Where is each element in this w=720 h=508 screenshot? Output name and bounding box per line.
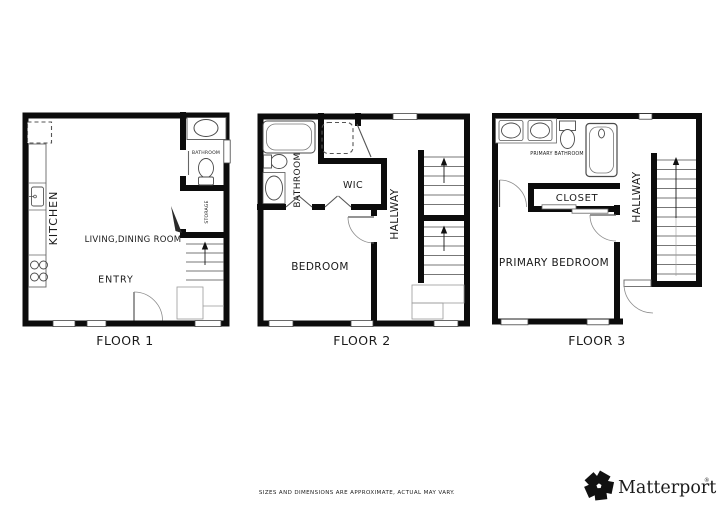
brand-wordmark: Matterport (618, 478, 716, 498)
window (587, 319, 609, 325)
closet-label: CLOSET (556, 193, 599, 204)
window (224, 140, 230, 163)
hallway-label: HALLWAY (389, 188, 401, 239)
hall-door-leaf (624, 280, 651, 287)
living-dining-label: LIVING,DINING ROOM (85, 235, 182, 245)
understair-nook (177, 287, 203, 319)
matterport-logo: Matterport ® (581, 470, 717, 505)
floor-3-plan: PRIMARY BATHROOM CLOSET HALLWAY PRIMARY … (492, 113, 702, 348)
primary-bedroom-label: PRIMARY BEDROOM (499, 257, 609, 269)
bedroom-label: BEDROOM (291, 261, 349, 273)
window (351, 321, 373, 327)
hallway-label: HALLWAY (631, 171, 643, 222)
floorplan-page: KITCHEN LIVING,DINING ROOM ENTRY BATHROO… (0, 0, 720, 508)
window (639, 114, 652, 120)
wic-label: WIC (343, 180, 363, 191)
window (393, 114, 417, 120)
window (87, 321, 106, 327)
hall-door-swing (624, 284, 653, 313)
toilet-icon (560, 121, 576, 149)
window (434, 321, 458, 327)
toilet-icon (199, 159, 214, 186)
window (195, 321, 221, 327)
primary-bathroom-label: PRIMARY BATHROOM (530, 151, 584, 157)
window (53, 321, 75, 327)
bathtub-icon (263, 121, 315, 153)
entry-label: ENTRY (98, 275, 134, 286)
bathroom-label: BATHROOM (192, 150, 220, 156)
floor-1-plan: KITCHEN LIVING,DINING ROOM ENTRY BATHROO… (26, 112, 231, 348)
refrigerator-icon (28, 122, 52, 143)
storage-label: STORAGE (204, 200, 210, 223)
vanity-counter-icon (496, 119, 557, 144)
kitchen-sink-icon (29, 187, 44, 206)
registered-trademark: ® (704, 477, 710, 484)
floor-2-title: FLOOR 2 (333, 333, 391, 348)
disclaimer-text: SIZES AND DIMENSIONS ARE APPROXIMATE, AC… (259, 490, 455, 496)
matterport-icon (581, 470, 618, 505)
toilet-icon (264, 155, 288, 169)
kitchen-counter-icon (29, 144, 47, 287)
shower-icon (586, 124, 617, 177)
floorplan-drawing: KITCHEN LIVING,DINING ROOM ENTRY BATHROO… (0, 0, 720, 508)
floor-2-plan: BATHROOM WIC HALLWAY BEDROOM FLOOR 2 (257, 113, 467, 348)
window (501, 319, 528, 325)
sink-vanity-icon (263, 173, 285, 204)
floor-3-title: FLOOR 3 (568, 333, 626, 348)
floor-1-title: FLOOR 1 (96, 333, 154, 348)
bathroom-label: BATHROOM (293, 152, 303, 207)
window (269, 321, 293, 327)
kitchen-label: KITCHEN (47, 191, 60, 246)
